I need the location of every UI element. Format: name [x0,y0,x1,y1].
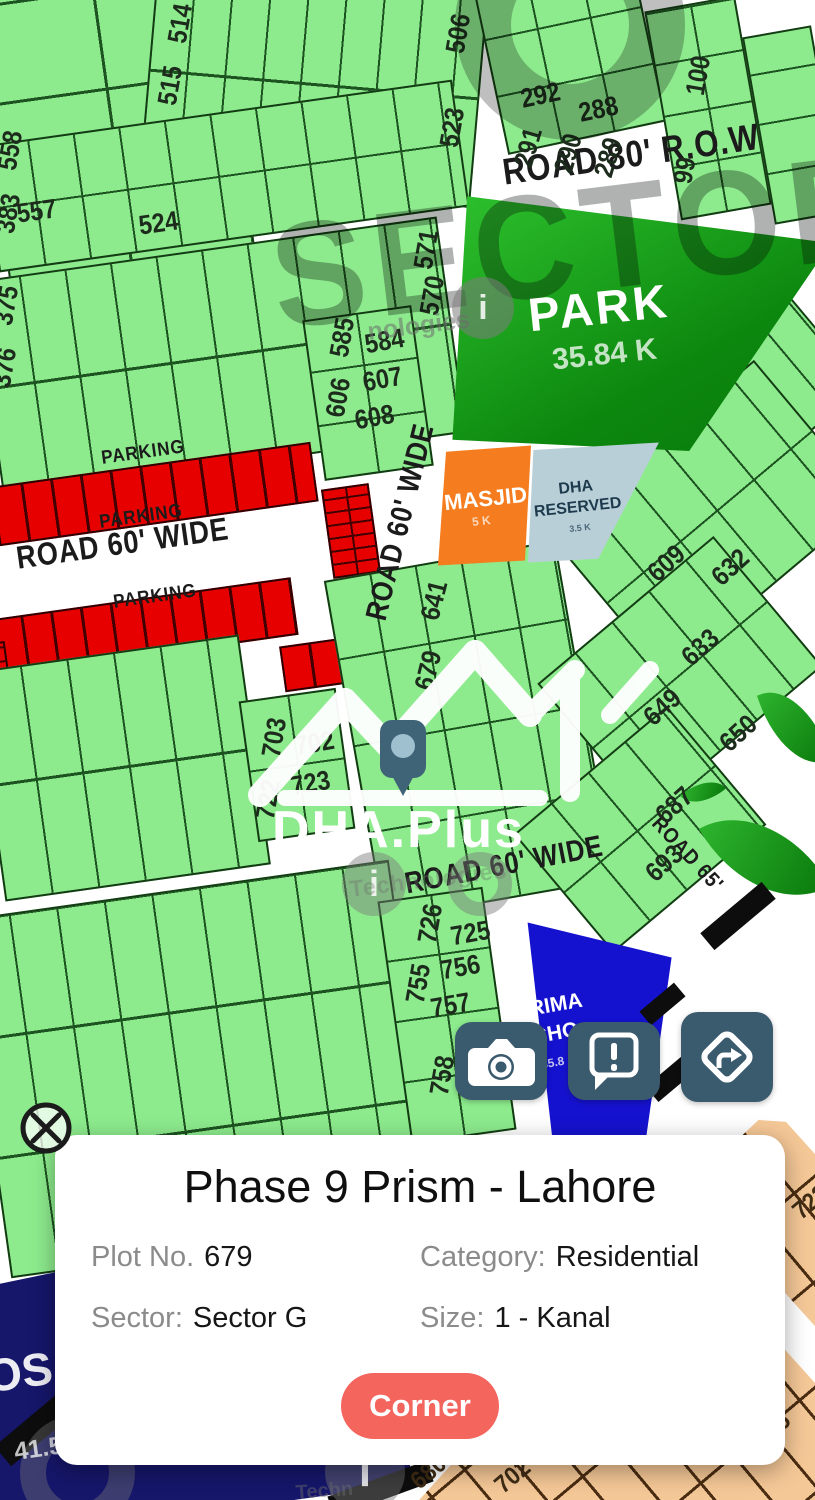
camera-button[interactable] [455,1022,547,1100]
field-value: 1 - Kanal [494,1302,610,1334]
close-icon [18,1100,74,1156]
pin-icon [380,720,426,796]
tech-watermark: Techn [295,1478,354,1500]
field-label: Plot No. [91,1241,194,1273]
field-label: Size: [420,1302,484,1334]
dha-reserved-label: DHA RESERVED 3.5 K [531,474,625,543]
card-fields: Plot No.679 Category:Residential Sector:… [55,1213,785,1335]
close-button[interactable] [18,1100,74,1156]
field-value: 679 [204,1241,252,1273]
map-canvas[interactable]: ROAD 80' R.O.W ROAD 60' WIDE ROAD 60' WI… [0,0,815,1500]
field-label: Sector: [91,1302,183,1334]
field-plot-no: Plot No.679 [91,1241,420,1274]
field-sector: Sector:Sector G [91,1302,420,1335]
masjid-size: 5 K [471,513,491,529]
brand-watermark: DHA.Plus [272,800,525,860]
plot-number: 524 [137,205,181,241]
card-title: Phase 9 Prism - Lahore [55,1161,785,1213]
field-value: Sector G [193,1302,307,1334]
corner-button[interactable]: Corner [341,1373,499,1439]
field-label: Category: [420,1241,546,1273]
field-category: Category:Residential [420,1241,749,1274]
directions-button[interactable] [681,1012,773,1102]
hospital-label: OS [0,1341,56,1404]
field-size: Size:1 - Kanal [420,1302,749,1335]
report-icon [568,1022,660,1100]
report-button[interactable] [568,1022,660,1100]
directions-icon [681,1012,773,1102]
field-value: Residential [556,1241,699,1273]
camera-icon [455,1022,547,1100]
plot-info-card: Phase 9 Prism - Lahore Plot No.679 Categ… [55,1135,785,1465]
